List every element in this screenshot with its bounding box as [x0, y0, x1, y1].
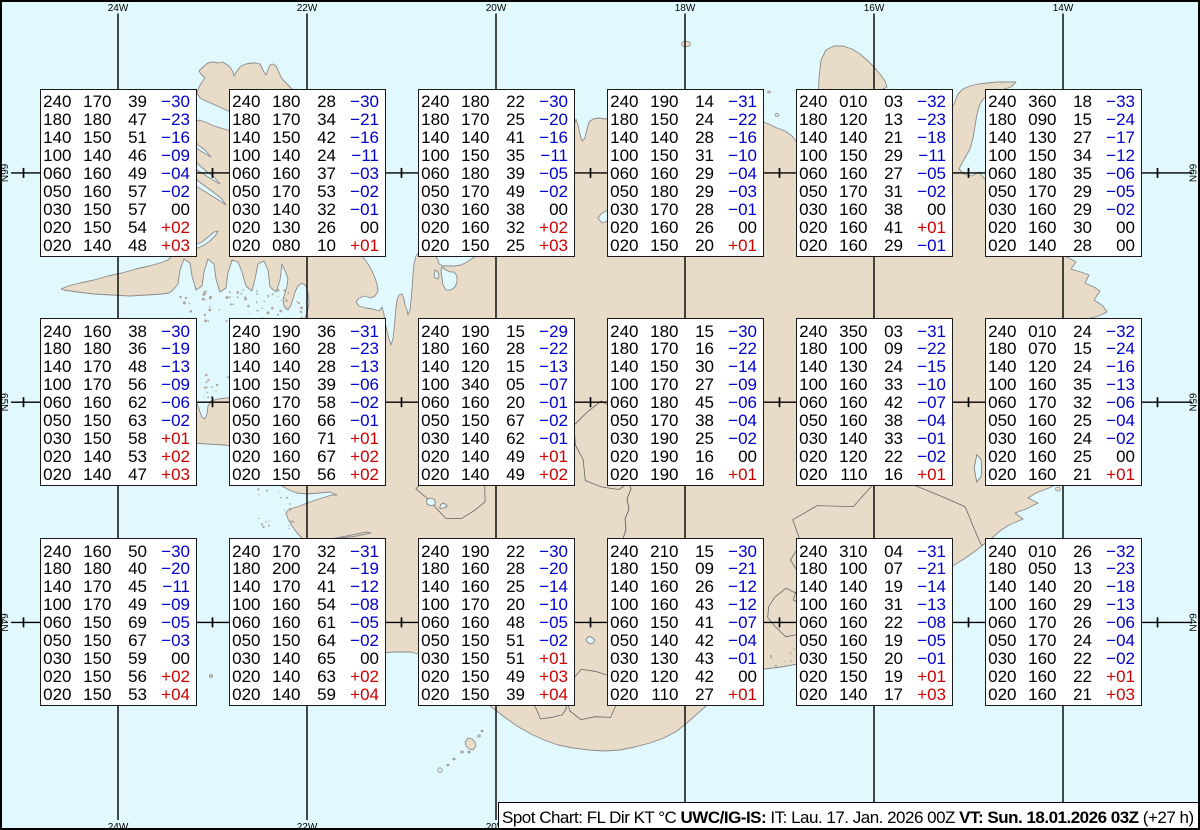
svg-text:22W: 22W: [297, 3, 318, 14]
svg-text:18W: 18W: [675, 3, 696, 14]
svg-text:24W: 24W: [108, 822, 129, 830]
svg-text:14W: 14W: [1053, 3, 1074, 14]
svg-text:64N: 64N: [2, 613, 9, 631]
svg-text:24W: 24W: [108, 3, 129, 14]
svg-text:20W: 20W: [486, 3, 507, 14]
svg-text:65N: 65N: [1187, 393, 1198, 411]
svg-text:66N: 66N: [2, 164, 9, 182]
svg-text:66N: 66N: [1187, 164, 1198, 182]
svg-text:22W: 22W: [297, 822, 318, 830]
svg-text:65N: 65N: [2, 393, 9, 411]
svg-text:64N: 64N: [1187, 613, 1198, 631]
svg-text:16W: 16W: [864, 3, 885, 14]
